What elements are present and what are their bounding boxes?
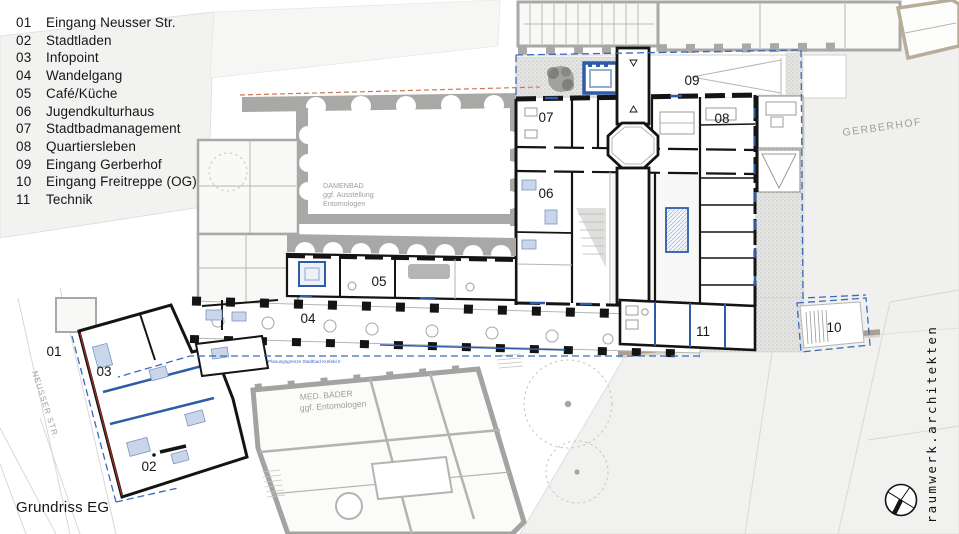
legend-label: Eingang Freitreppe (OG) [46, 173, 197, 191]
garden-courtyard [666, 208, 688, 252]
legend-item: 02Stadtladen [16, 32, 197, 50]
legend-item: 08Quartiersleben [16, 138, 197, 156]
room-marker-09: 09 [684, 73, 699, 88]
north-compass-icon [886, 485, 917, 516]
legend-label: Quartiersleben [46, 138, 136, 156]
cafe-kueche-wing [287, 234, 516, 300]
legend-item: 04Wandelgang [16, 67, 197, 85]
med-baeder-building [253, 354, 524, 534]
gerberhof-entrance-band [516, 53, 846, 98]
svg-text:ggf. Ausstellung: ggf. Ausstellung [323, 190, 374, 199]
legend-num: 10 [16, 173, 46, 191]
legend-label: Wandelgang [46, 67, 122, 85]
legend-item: 11Technik [16, 191, 197, 209]
octagon-hall [608, 123, 658, 168]
kiosk-element [584, 63, 617, 93]
legend-num: 07 [16, 120, 46, 138]
technik-rooms [620, 300, 755, 350]
legend-item: 06Jugendkulturhaus [16, 103, 197, 121]
legend-num: 06 [16, 103, 46, 121]
legend-item: 01Eingang Neusser Str. [16, 14, 197, 32]
legend-num: 11 [16, 191, 46, 209]
legend-label: Technik [46, 191, 92, 209]
legend-num: 09 [16, 156, 46, 174]
neusser-str-label: NEUSSER STR. [30, 370, 61, 440]
legend-num: 01 [16, 14, 46, 32]
legend-item: 03Infopoint [16, 49, 197, 67]
legend: 01Eingang Neusser Str. 02Stadtladen 03In… [16, 14, 197, 209]
legend-item: 05Café/Küche [16, 85, 197, 103]
legend-num: 03 [16, 49, 46, 67]
legend-num: 04 [16, 67, 46, 85]
legend-num: 02 [16, 32, 46, 50]
svg-text:Entomologen: Entomologen [323, 199, 365, 208]
legend-label: Jugendkulturhaus [46, 103, 154, 121]
legend-label: Café/Küche [46, 85, 118, 103]
legend-item: 10Eingang Freitreppe (OG) [16, 173, 197, 191]
planungsgrenze-label: Planungsgrenze Stadtbad Krefeld II [268, 359, 341, 364]
room-marker-04: 04 [300, 311, 316, 326]
legend-item: 09Eingang Gerberhof [16, 156, 197, 174]
room-marker-03: 03 [96, 364, 111, 379]
legend-label: Eingang Neusser Str. [46, 14, 176, 32]
room-marker-10: 10 [826, 320, 841, 335]
legend-num: 05 [16, 85, 46, 103]
brand-logotype: raumwerk.architekten [924, 324, 942, 524]
drawing-title: Grundriss EG [16, 499, 109, 516]
room-marker-01: 01 [46, 344, 61, 359]
room-marker-07: 07 [538, 110, 553, 125]
floorplan-sheet: DAMENBAD ggf. Ausstellung Entomologen ME… [0, 0, 959, 534]
room-marker-02: 02 [141, 459, 156, 474]
room-marker-08: 08 [714, 111, 729, 126]
legend-label: Stadtladen [46, 32, 112, 50]
damenbad-label: DAMENBAD [323, 181, 364, 190]
legend-label: Stadtbadmanagement [46, 120, 181, 138]
legend-label: Eingang Gerberhof [46, 156, 162, 174]
legend-item: 07Stadtbadmanagement [16, 120, 197, 138]
room-marker-06: 06 [538, 186, 553, 201]
legend-num: 08 [16, 138, 46, 156]
legend-label: Infopoint [46, 49, 99, 67]
room-marker-11: 11 [696, 324, 710, 339]
room-marker-05: 05 [371, 274, 386, 289]
